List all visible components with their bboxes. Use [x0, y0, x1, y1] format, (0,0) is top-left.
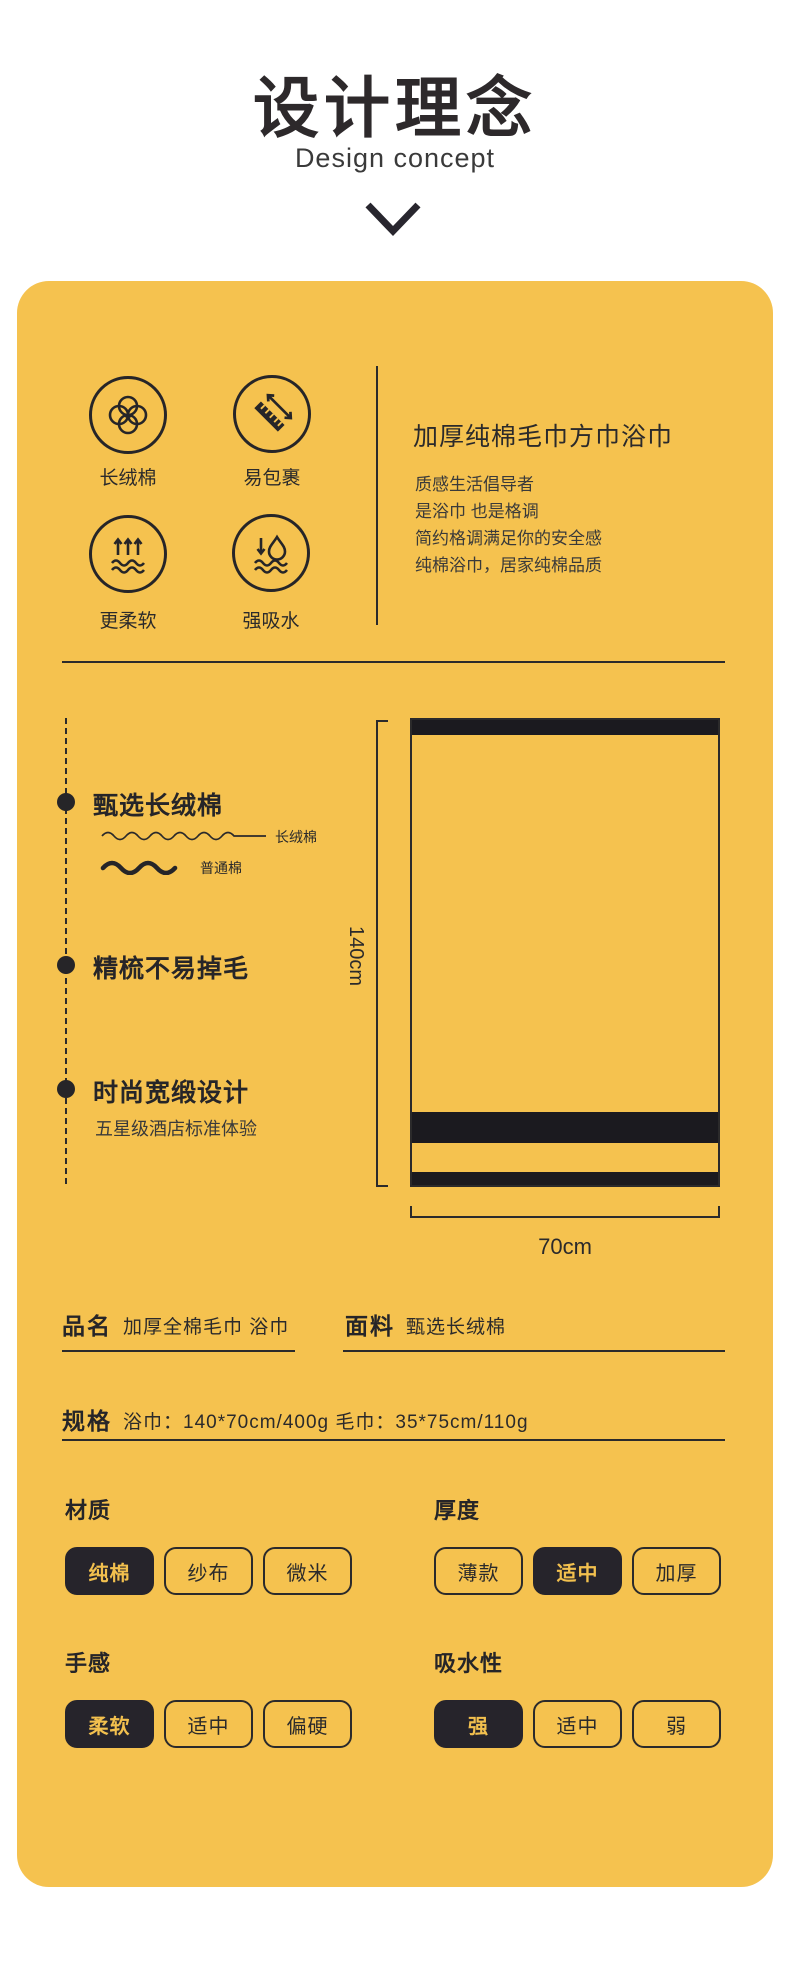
absorbent-icon [232, 514, 310, 592]
towel-bottom-stripe [412, 1172, 718, 1185]
description-line: 简约格调满足你的安全感 [415, 525, 602, 552]
spec-underline [62, 1439, 725, 1441]
product-heading: 加厚纯棉毛巾方巾浴巾 [413, 417, 673, 453]
attr-group-absorbency: 吸水性 强 适中 弱 [434, 1646, 721, 1748]
attr-label: 吸水性 [434, 1646, 721, 1678]
spec-value: 浴巾：140*70cm/400g 毛巾：35*75cm/110g [123, 1407, 529, 1434]
bullet-dot [57, 956, 75, 974]
attr-label: 手感 [65, 1646, 352, 1678]
description-line: 质感生活倡导者 [415, 471, 602, 498]
wave-label: 普通棉 [200, 858, 242, 878]
width-bracket [410, 1206, 720, 1218]
feel-option-2[interactable]: 偏硬 [263, 1700, 352, 1748]
feature-label: 强吸水 [211, 606, 331, 633]
product-description: 质感生活倡导者 是浴巾 也是格调 简约格调满足你的安全感 纯棉浴巾，居家纯棉品质 [415, 471, 602, 579]
height-label: 140cm [327, 911, 367, 1001]
thickness-option-0[interactable]: 薄款 [434, 1547, 523, 1595]
absorbency-option-1[interactable]: 适中 [533, 1700, 622, 1748]
dashed-timeline [65, 718, 67, 1184]
spec-label: 面料 [345, 1307, 395, 1341]
thickness-option-2[interactable]: 加厚 [632, 1547, 721, 1595]
selling-point-title: 精梳不易掉毛 [93, 949, 249, 985]
attr-group-thickness: 厚度 薄款 适中 加厚 [434, 1493, 721, 1595]
description-line: 是浴巾 也是格调 [415, 498, 602, 525]
towel-diagram [410, 718, 720, 1187]
attr-group-material: 材质 纯棉 纱布 微米 [65, 1493, 352, 1595]
thin-wave-icon [100, 828, 268, 842]
bullet-dot [57, 793, 75, 811]
feel-option-0[interactable]: 柔软 [65, 1700, 154, 1748]
chevron-down-icon [364, 201, 422, 237]
feel-option-1[interactable]: 适中 [164, 1700, 253, 1748]
thickness-option-1[interactable]: 适中 [533, 1547, 622, 1595]
feature-label: 易包裹 [212, 463, 332, 490]
material-option-1[interactable]: 纱布 [164, 1547, 253, 1595]
design-concept-section: 设计理念 Design concept 长绒棉 [0, 0, 790, 1968]
material-option-0[interactable]: 纯棉 [65, 1547, 154, 1595]
selling-point-subtitle: 五星级酒店标准体验 [95, 1115, 257, 1141]
width-label: 70cm [485, 1234, 645, 1260]
attr-label: 材质 [65, 1493, 352, 1525]
selling-point-title: 时尚宽缎设计 [93, 1073, 249, 1109]
absorbency-option-2[interactable]: 弱 [632, 1700, 721, 1748]
absorbency-option-0[interactable]: 强 [434, 1700, 523, 1748]
height-bracket [376, 720, 386, 1187]
material-option-2[interactable]: 微米 [263, 1547, 352, 1595]
spec-value: 甄选长绒棉 [406, 1312, 506, 1339]
cotton-icon [89, 376, 167, 454]
wave-label: 长绒棉 [275, 827, 317, 847]
section-divider [62, 661, 725, 663]
softer-icon [89, 515, 167, 593]
spec-underline [62, 1350, 295, 1352]
vertical-divider [376, 366, 378, 625]
page-title: 设计理念 [0, 55, 790, 151]
bullet-dot [57, 1080, 75, 1098]
page-subtitle: Design concept [0, 143, 790, 174]
attr-label: 厚度 [434, 1493, 721, 1525]
spec-label: 规格 [62, 1402, 112, 1436]
spec-value: 加厚全棉毛巾 浴巾 [123, 1312, 289, 1339]
attr-group-feel: 手感 柔软 适中 偏硬 [65, 1646, 352, 1748]
feature-label: 更柔软 [68, 606, 188, 633]
selling-point-title: 甄选长绒棉 [93, 786, 223, 822]
spec-underline [343, 1350, 725, 1352]
description-line: 纯棉浴巾，居家纯棉品质 [415, 552, 602, 579]
thick-wave-icon [99, 857, 191, 875]
towel-accent-stripe [412, 1112, 718, 1143]
spec-label: 品名 [62, 1307, 112, 1341]
wrap-ruler-icon [233, 375, 311, 453]
towel-top-stripe [412, 720, 718, 735]
design-card: 长绒棉 易包裹 [17, 281, 773, 1887]
feature-label: 长绒棉 [68, 463, 188, 490]
